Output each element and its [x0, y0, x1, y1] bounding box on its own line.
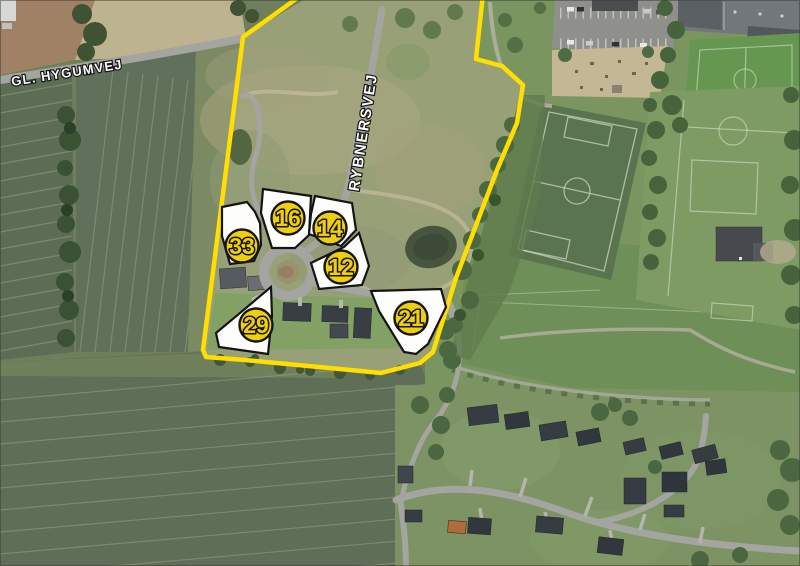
house: [467, 517, 491, 535]
marker-number: 21: [398, 305, 424, 331]
plot-marker-12[interactable]: 12: [325, 251, 358, 284]
house: [662, 472, 687, 492]
marker-number: 12: [328, 254, 354, 280]
aerial-map-canvas[interactable]: 16 14 12 33 29 21 GL. HYGUMVEJ RYBNERSVE…: [0, 0, 800, 566]
marker-number: 29: [243, 312, 269, 338]
house: [219, 267, 246, 289]
house-orange-roof: [448, 520, 467, 533]
plot-map-page: 16 14 12 33 29 21 GL. HYGUMVEJ RYBNERSVE…: [0, 0, 800, 566]
house: [664, 505, 684, 517]
house: [353, 308, 372, 339]
house: [504, 411, 530, 429]
house: [597, 537, 624, 556]
house: [283, 303, 312, 322]
house: [624, 478, 646, 504]
plot-marker-14[interactable]: 14: [314, 212, 347, 245]
house: [705, 459, 727, 476]
house: [398, 466, 413, 483]
plot-marker-16[interactable]: 16: [272, 202, 305, 235]
house: [322, 306, 349, 323]
plot-marker-33[interactable]: 33: [226, 230, 259, 263]
playground: [552, 46, 668, 98]
marker-number: 14: [317, 215, 343, 241]
marker-number: 33: [229, 233, 255, 259]
house: [467, 404, 499, 426]
house: [535, 516, 563, 534]
house: [330, 324, 348, 338]
plot-marker-29[interactable]: 29: [240, 309, 273, 342]
plot-marker-21[interactable]: 21: [395, 302, 428, 335]
house: [405, 510, 422, 522]
marker-number: 16: [275, 205, 301, 231]
